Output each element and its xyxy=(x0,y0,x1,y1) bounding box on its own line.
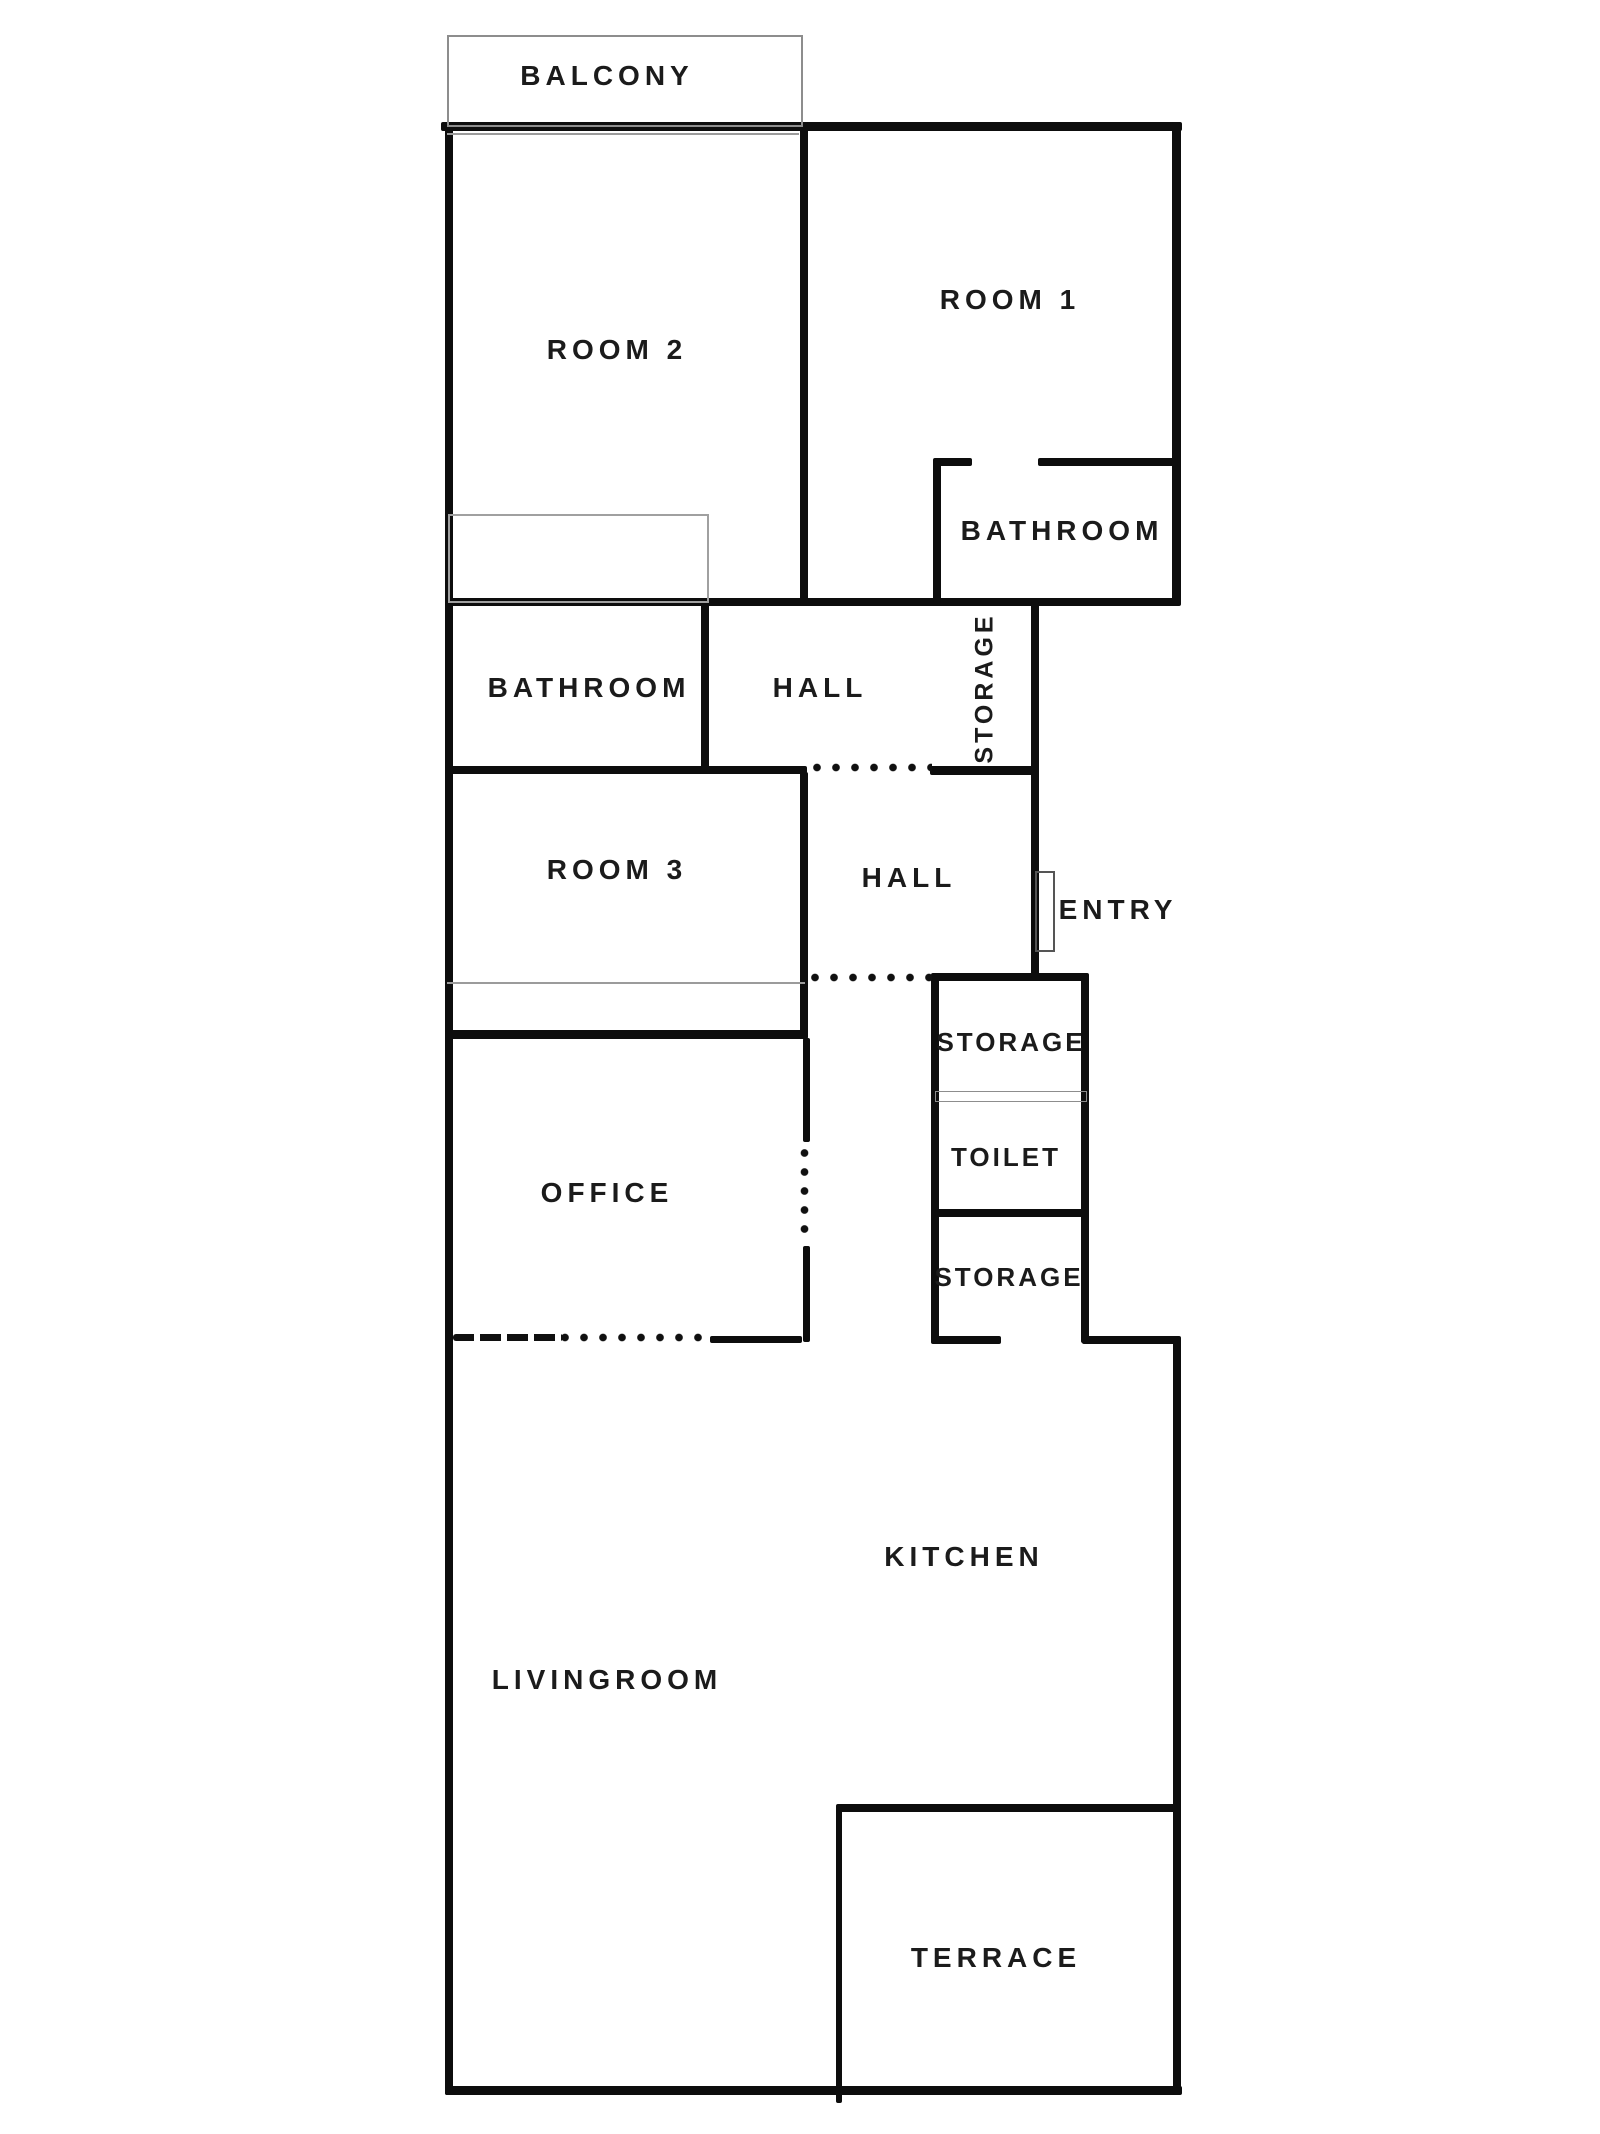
room-label-hall-upper: HALL xyxy=(773,674,868,702)
wall-wall-y770-left xyxy=(445,766,807,774)
wall-bath-hall-divider xyxy=(701,602,709,772)
wall-kitchen-top-seg-a xyxy=(931,1336,1001,1344)
wall-outer-right-lower xyxy=(1173,1336,1181,2095)
room-label-terrace: TERRACE xyxy=(911,1944,1081,1972)
entry-door xyxy=(1035,871,1055,952)
room-label-toilet: TOILET xyxy=(951,1144,1061,1170)
room-label-kitchen: KITCHEN xyxy=(884,1543,1043,1571)
hall-passage-dots-lower xyxy=(810,973,932,982)
room-label-entry: ENTRY xyxy=(1059,896,1178,924)
wall-office-right-dash-b xyxy=(803,1246,810,1342)
room2-closet xyxy=(448,514,709,603)
office-bottom-dots xyxy=(560,1333,708,1342)
wall-terrace-top xyxy=(837,1804,1180,1812)
room-label-storage-mid: STORAGE xyxy=(936,1029,1085,1055)
room-label-balcony: BALCONY xyxy=(520,62,693,90)
wall-room3-bottom-wall xyxy=(445,1030,808,1039)
wall-bath-right-left-wall xyxy=(933,462,941,602)
wall-room3-right-wall xyxy=(800,772,808,1038)
balcony-window-line xyxy=(447,133,799,135)
wall-storage-upper-bottom xyxy=(930,766,1037,775)
room-label-livingroom: LIVINGROOM xyxy=(492,1666,722,1694)
wall-outer-bottom xyxy=(445,2086,1182,2095)
room3-strip-line xyxy=(447,982,805,984)
room-label-room3: ROOM 3 xyxy=(547,856,687,884)
wall-terrace-left xyxy=(836,1804,842,2103)
room-label-room1: ROOM 1 xyxy=(940,286,1080,314)
room-label-storage-low: STORAGE xyxy=(934,1264,1083,1290)
room-label-room2: ROOM 2 xyxy=(547,336,687,364)
room-label-bathroom-left: BATHROOM xyxy=(488,674,691,702)
office-bottom-dashes xyxy=(453,1334,563,1341)
wall-divider-room1-room2 xyxy=(800,122,808,606)
wall-kitchen-top-seg-b xyxy=(1082,1336,1178,1344)
hall-passage-dots-upper xyxy=(812,763,932,772)
room-label-office: OFFICE xyxy=(541,1179,674,1207)
wall-outer-left xyxy=(445,122,453,2095)
toilet-shelf xyxy=(935,1091,1087,1102)
wall-storage-col-top xyxy=(931,973,1089,981)
floor-plan: BALCONYROOM 2ROOM 1BATHROOMBATHROOMHALLS… xyxy=(0,0,1600,2134)
room-label-hall-lower: HALL xyxy=(862,864,957,892)
wall-office-bottom-solid xyxy=(710,1336,802,1343)
wall-outer-right-upper xyxy=(1172,122,1181,606)
room-label-storage-upper: STORAGE xyxy=(973,612,998,763)
wall-toilet-bottom xyxy=(935,1209,1085,1217)
room-label-bathroom-right: BATHROOM xyxy=(961,517,1164,545)
office-right-dots xyxy=(800,1148,809,1240)
wall-bath-right-top-b xyxy=(1038,458,1178,466)
wall-office-right-dash-a xyxy=(803,1038,810,1142)
